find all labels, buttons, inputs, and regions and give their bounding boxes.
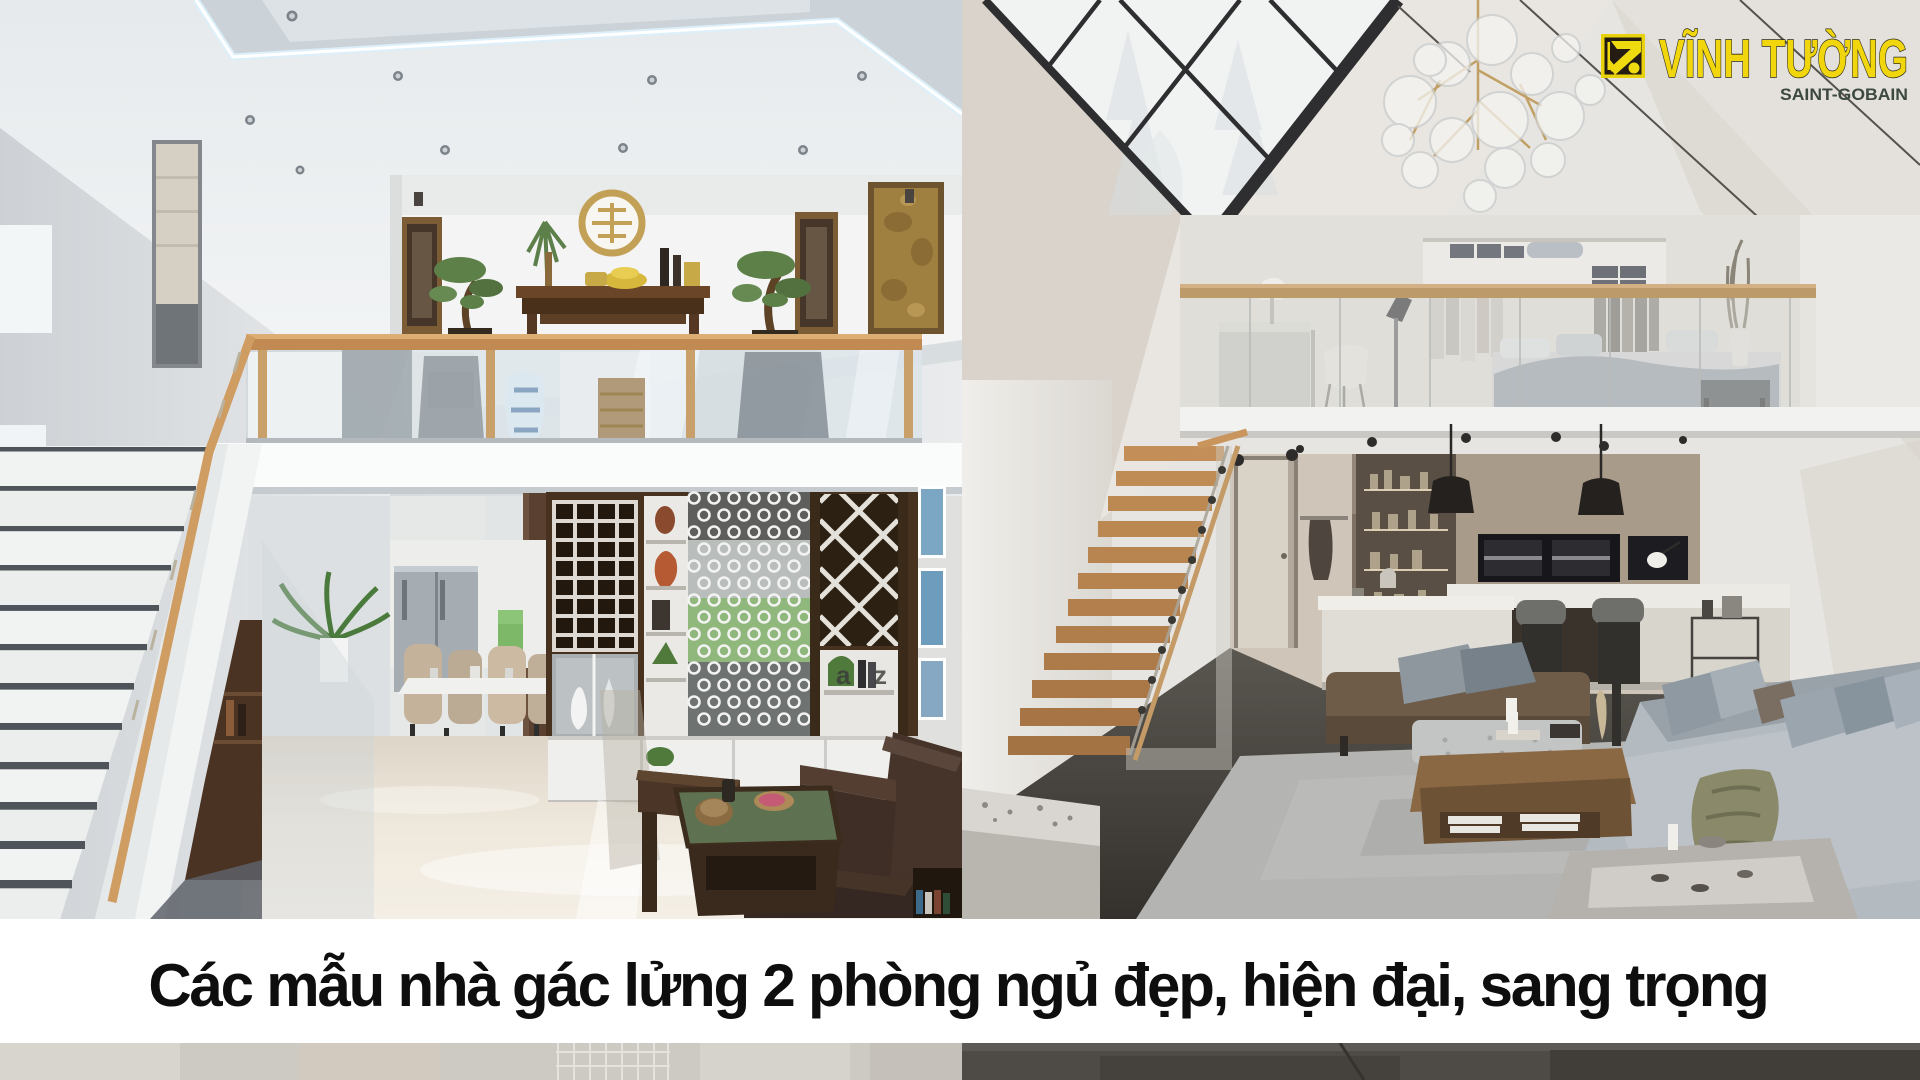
svg-text:SAINT-GOBAIN: SAINT-GOBAIN bbox=[1780, 86, 1908, 104]
svg-text:VĨNH TƯỜNG: VĨNH TƯỜNG bbox=[1659, 29, 1908, 89]
svg-text:a: a bbox=[836, 660, 851, 690]
svg-text:z: z bbox=[874, 660, 887, 690]
svg-text:Các mẫu nhà gác lửng 2 phòng n: Các mẫu nhà gác lửng 2 phòng ngủ đẹp, hi… bbox=[148, 952, 1767, 1019]
